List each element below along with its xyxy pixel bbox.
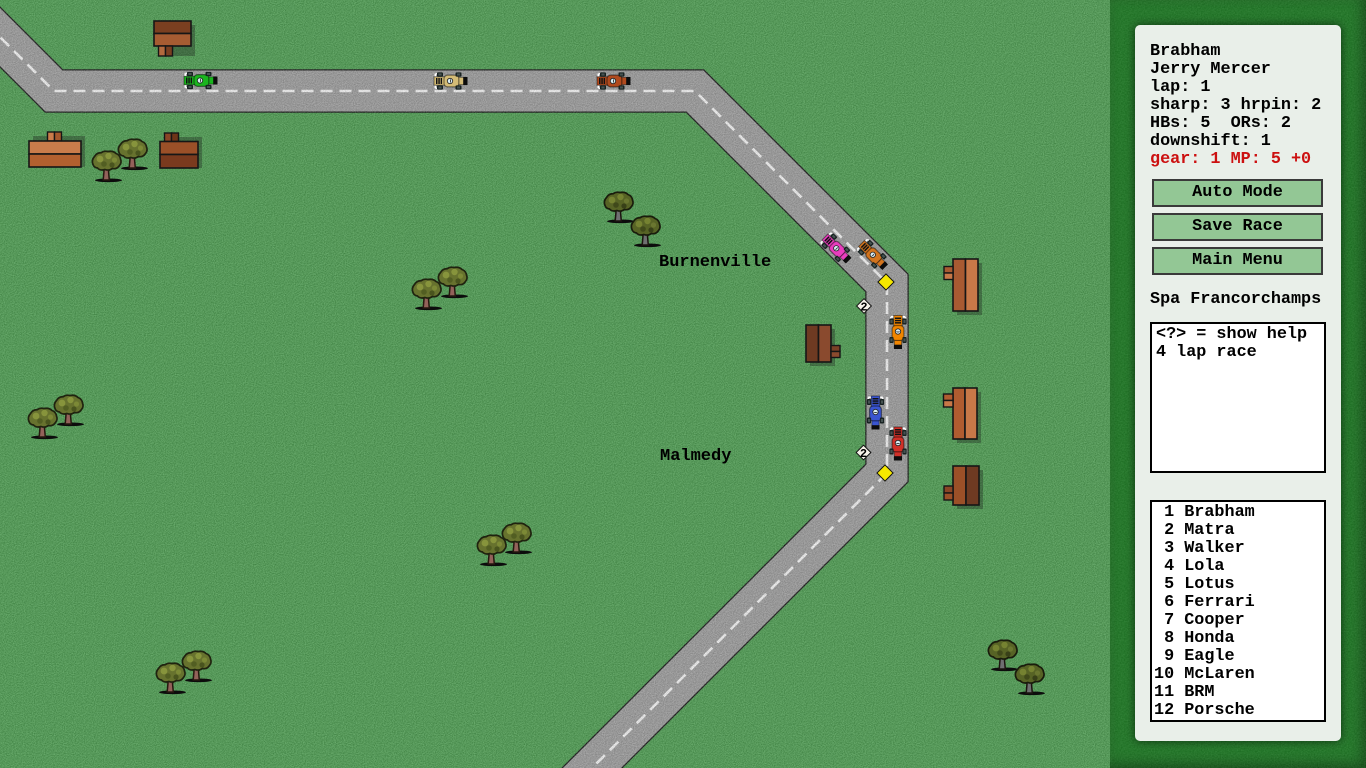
svg-text:2: 2 <box>860 301 867 315</box>
svg-text:Burnenville: Burnenville <box>659 253 771 272</box>
svg-text:2: 2 <box>860 447 867 461</box>
svg-text:Malmedy: Malmedy <box>660 447 731 466</box>
